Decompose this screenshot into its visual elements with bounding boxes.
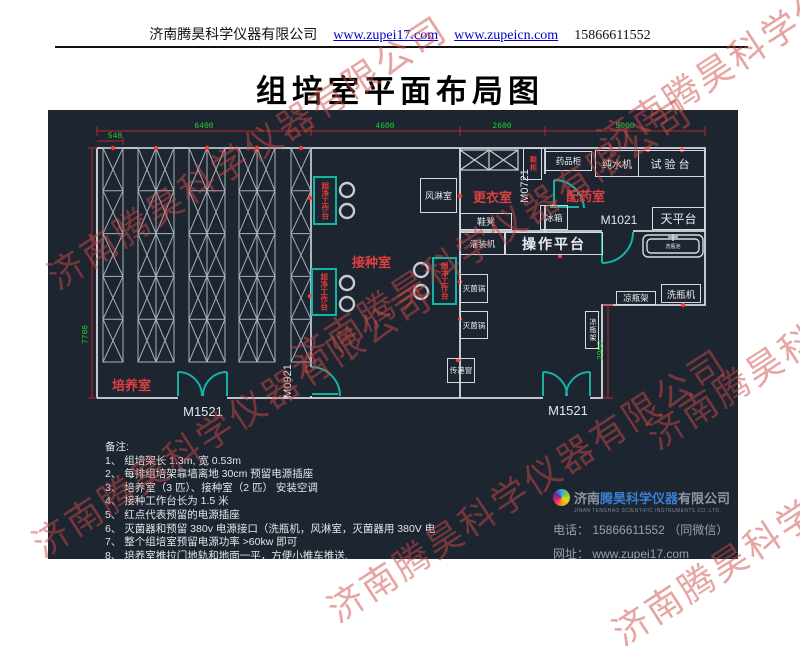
note-line: 3、 培养室（3 匹）、接种室（2 匹） 安装空调: [105, 482, 485, 496]
header-divider: [55, 46, 748, 48]
footer-website[interactable]: 网址： www.zupei17.com: [553, 545, 735, 559]
filling-machine: 灌装机: [460, 232, 505, 255]
dim-2600: 2600: [482, 122, 522, 131]
water-purifier: 纯水机: [595, 150, 639, 177]
dim-4600: 4600: [365, 122, 405, 131]
note-line: 1、 组培架长 1.3m, 宽 0.53m: [105, 455, 485, 469]
dim-6400: 6400: [184, 122, 224, 131]
bottle-cooling-rack-vertical: 凉瓶架: [585, 311, 599, 349]
page-header: 济南腾昊科学仪器有限公司 www.zupei17.com www.zupeicn…: [0, 24, 800, 44]
fridge: 冰箱: [540, 205, 568, 230]
transfer-window: 传递窗: [447, 358, 475, 383]
clean-workbench-1: 超净工作台: [313, 176, 337, 225]
page-title: 组培室平面布局图: [0, 66, 800, 111]
room-label-dispensing: 配药室: [566, 186, 605, 205]
medicine-cabinet: 药品柜: [545, 151, 592, 171]
shoe-bench: 鞋凳: [460, 213, 512, 230]
door-label-m0921: M0921: [282, 361, 294, 401]
bottle-washer: 洗瓶机: [661, 284, 701, 303]
balance-table: 天平台: [652, 207, 705, 230]
test-bench: 试验台: [638, 150, 705, 177]
header-link-zupei17[interactable]: www.zupei17.com: [333, 28, 438, 44]
floorplan-canvas: 6400 4600 2600 5000 548 7700 2900 培养室 接种…: [48, 110, 738, 559]
air-shower-room: 风淋室: [420, 178, 457, 213]
room-label-changing: 更衣室: [473, 187, 512, 206]
note-line: 8、 培养室推拉门地轨和地面一平，方便小推车推送.: [105, 550, 485, 559]
note-line: 2、 每排组培架靠墙离地 30cm 预留电源插座: [105, 468, 485, 482]
bottle-cooling-rack: 凉瓶架: [616, 291, 656, 305]
sterilizer-1: 灭菌锅: [460, 274, 488, 303]
note-line: 5、 红点代表预留的电源插座: [105, 509, 485, 523]
footer-phone: 电话： 15866611552 （同微信）: [553, 521, 735, 538]
header-phone: 15866611552: [574, 28, 650, 44]
footer-brand-block: 济南腾昊科学仪器有限公司 JINAN TENGHAO SCIENTIFIC IN…: [553, 488, 735, 559]
walls: [97, 148, 705, 398]
stools: [340, 183, 428, 311]
shoe-cabinet: 鞋柜: [523, 148, 542, 180]
clean-workbench-3: 超净工作台: [432, 257, 457, 305]
dim-7700: 7700: [82, 315, 91, 355]
header-company-name: 济南腾昊科学仪器有限公司: [149, 24, 317, 44]
door-label-m1521-right: M1521: [538, 403, 598, 418]
dim-548: 548: [100, 132, 130, 141]
notes-block: 备注: 1、 组培架长 1.3m, 宽 0.53m 2、 每排组培架靠墙离地 3…: [105, 441, 485, 559]
dim-5000: 5000: [605, 122, 645, 131]
door-label-m1021: M1021: [594, 213, 644, 227]
clean-workbench-2: 超净工作台: [311, 268, 337, 316]
locker-cabinet: [460, 150, 518, 170]
door-label-m1521-left: M1521: [173, 404, 233, 419]
header-link-zupeicn[interactable]: www.zupeicn.com: [454, 28, 558, 44]
sterilizer-2: 灭菌锅: [460, 311, 488, 339]
room-label-inoculation: 接种室: [352, 252, 391, 271]
footer-company-name-en: JINAN TENGHAO SCIENTIFIC INSTRUMENTS CO.…: [574, 508, 735, 514]
note-line: 4、 接种工作台长为 1.5 米: [105, 495, 485, 509]
culture-rack-shelving: [103, 148, 311, 362]
footer-company-name: 济南腾昊科学仪器有限公司: [574, 488, 730, 507]
room-label-culture: 培养室: [112, 375, 151, 394]
note-line: 6、 灭菌器和预留 380v 电源接口（洗瓶机，风淋室，灭菌器用 380V 电: [105, 523, 485, 537]
operation-platform: 操作平台: [505, 232, 603, 255]
sink-label: 洗瓶池: [658, 243, 688, 250]
notes-title: 备注:: [105, 441, 485, 455]
company-logo: [553, 489, 570, 506]
note-line: 7、 整个组培室预留电源功率 >60kw 即可: [105, 536, 485, 550]
